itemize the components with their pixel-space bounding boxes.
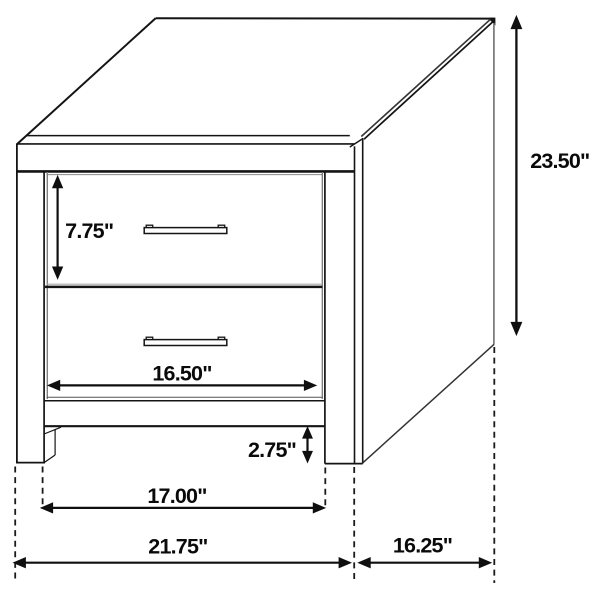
svg-text:17.00": 17.00" <box>147 484 206 508</box>
svg-text:2.75": 2.75" <box>248 438 296 462</box>
svg-text:7.75": 7.75" <box>65 219 113 243</box>
svg-text:16.50": 16.50" <box>152 362 211 386</box>
svg-text:21.75": 21.75" <box>148 535 207 559</box>
svg-text:16.25": 16.25" <box>393 534 452 558</box>
svg-text:23.50": 23.50" <box>530 149 589 173</box>
